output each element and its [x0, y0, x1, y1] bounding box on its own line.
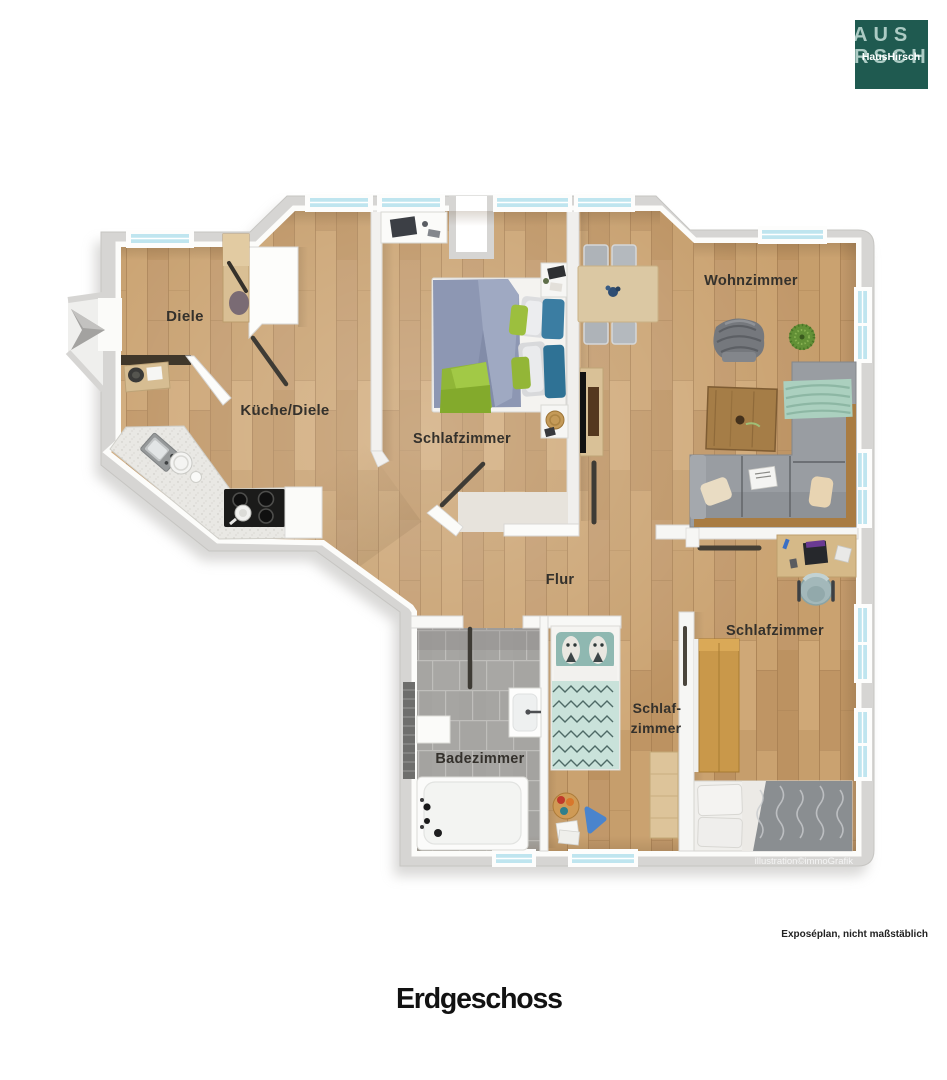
svg-text:Exposéplan, nicht maßstäblich: Exposéplan, nicht maßstäblich — [781, 929, 928, 940]
svg-text:AUS: AUS — [853, 24, 913, 46]
svg-text:HausHirsch: HausHirsch — [862, 51, 920, 63]
svg-text:Erdgeschoss: Erdgeschoss — [396, 983, 562, 1015]
